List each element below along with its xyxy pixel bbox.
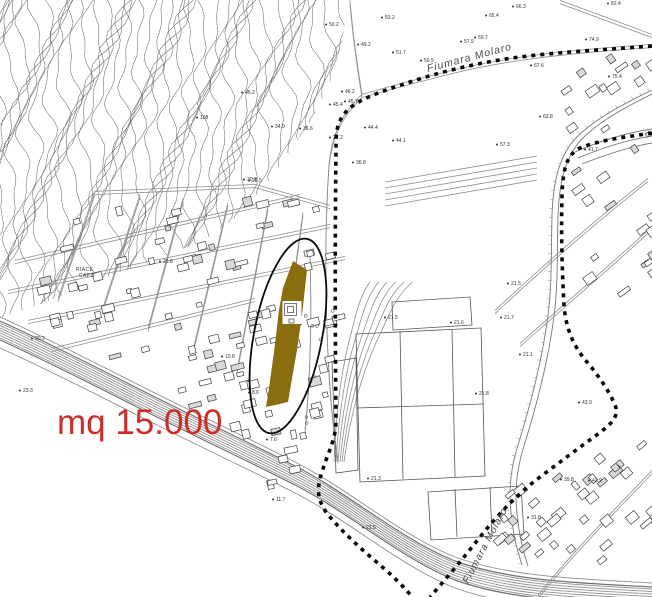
spot-elevation: 57.9 <box>464 39 474 45</box>
boundary-dashed-east <box>430 133 652 597</box>
spot-elevation: 51.7 <box>396 50 406 56</box>
spot-elevation: 21.5 <box>388 315 398 321</box>
spot-elevation: 23.3 <box>23 388 33 394</box>
spot-elevation: 21.1 <box>523 352 533 358</box>
notch-building-inner <box>288 307 294 313</box>
spot-elevation: 43.9 <box>582 400 592 406</box>
spot-elevation: 63.8 <box>543 114 553 120</box>
spot-elevation: 74.9 <box>589 37 599 43</box>
spot-elevation: 53.2 <box>385 15 395 21</box>
spot-elevation: 65.4 <box>489 13 499 19</box>
area-annotation: mq 15.000 <box>57 403 222 442</box>
spot-elevation: 45.4 <box>333 102 343 108</box>
spot-elevation: 46.2 <box>345 89 355 95</box>
spot-elevation: 66.3 <box>516 4 526 10</box>
spot-elevation: 11.7 <box>276 497 286 503</box>
spot-elevation: 21.5 <box>366 525 376 531</box>
spot-elevation: 75.4 <box>612 74 622 80</box>
spot-elevation: 39.8 <box>564 477 574 483</box>
buildings <box>37 54 652 565</box>
highlighted-parcel <box>266 261 307 407</box>
topographic-map: 53.265.466.382.459.757.974.951.750.549.2… <box>0 0 652 597</box>
spot-elevation: 42.9 <box>592 478 602 484</box>
spot-elevation: 36.8 <box>356 160 366 166</box>
spot-elevation: 82.4 <box>611 1 621 7</box>
spot-elevation: 59.7 <box>478 35 488 41</box>
spot-elevation: 67.6 <box>534 63 544 69</box>
place-label-line2: CAPO <box>79 273 95 279</box>
spot-elevation: 36.6 <box>303 126 313 132</box>
spot-elevation: 10.8 <box>225 354 235 360</box>
spot-elevation: 49.2 <box>361 42 371 48</box>
spot-elevation: 21.8 <box>479 391 489 397</box>
spot-elevation: 41.7 <box>588 147 598 153</box>
spot-elevation: 44.1 <box>396 138 406 144</box>
spot-elevation: 7.6 <box>270 437 277 443</box>
spot-elevation: 30.2 <box>247 177 257 183</box>
notch-building-small <box>289 319 294 323</box>
spot-elevation: 21.3 <box>371 476 381 482</box>
spot-elevation: 20.2 <box>35 336 45 342</box>
spot-elevation: 8.6 <box>252 390 259 396</box>
spot-elevation: 25.8 <box>163 259 173 265</box>
spot-elevation: 50.2 <box>329 22 339 28</box>
map-screenshot: 53.265.466.382.459.757.974.951.750.549.2… <box>0 0 652 597</box>
industrial-area <box>332 297 524 540</box>
spot-elevation: 21.5 <box>511 281 521 287</box>
spot-elevation: 45.2 <box>245 90 255 96</box>
contour-lines <box>0 0 409 336</box>
spot-elevation: 21.6 <box>454 320 464 326</box>
spot-elevation: 31.8 <box>531 515 541 521</box>
spot-elevation: 34.9 <box>275 124 285 130</box>
spot-elevation: 21.7 <box>504 315 514 321</box>
spot-elevation: 108 <box>200 115 209 121</box>
spot-elevation: 57.3 <box>500 142 510 148</box>
spot-elevation: 44.4 <box>368 125 378 131</box>
spot-elevations: 53.265.466.382.459.757.974.951.750.549.2… <box>19 1 622 531</box>
